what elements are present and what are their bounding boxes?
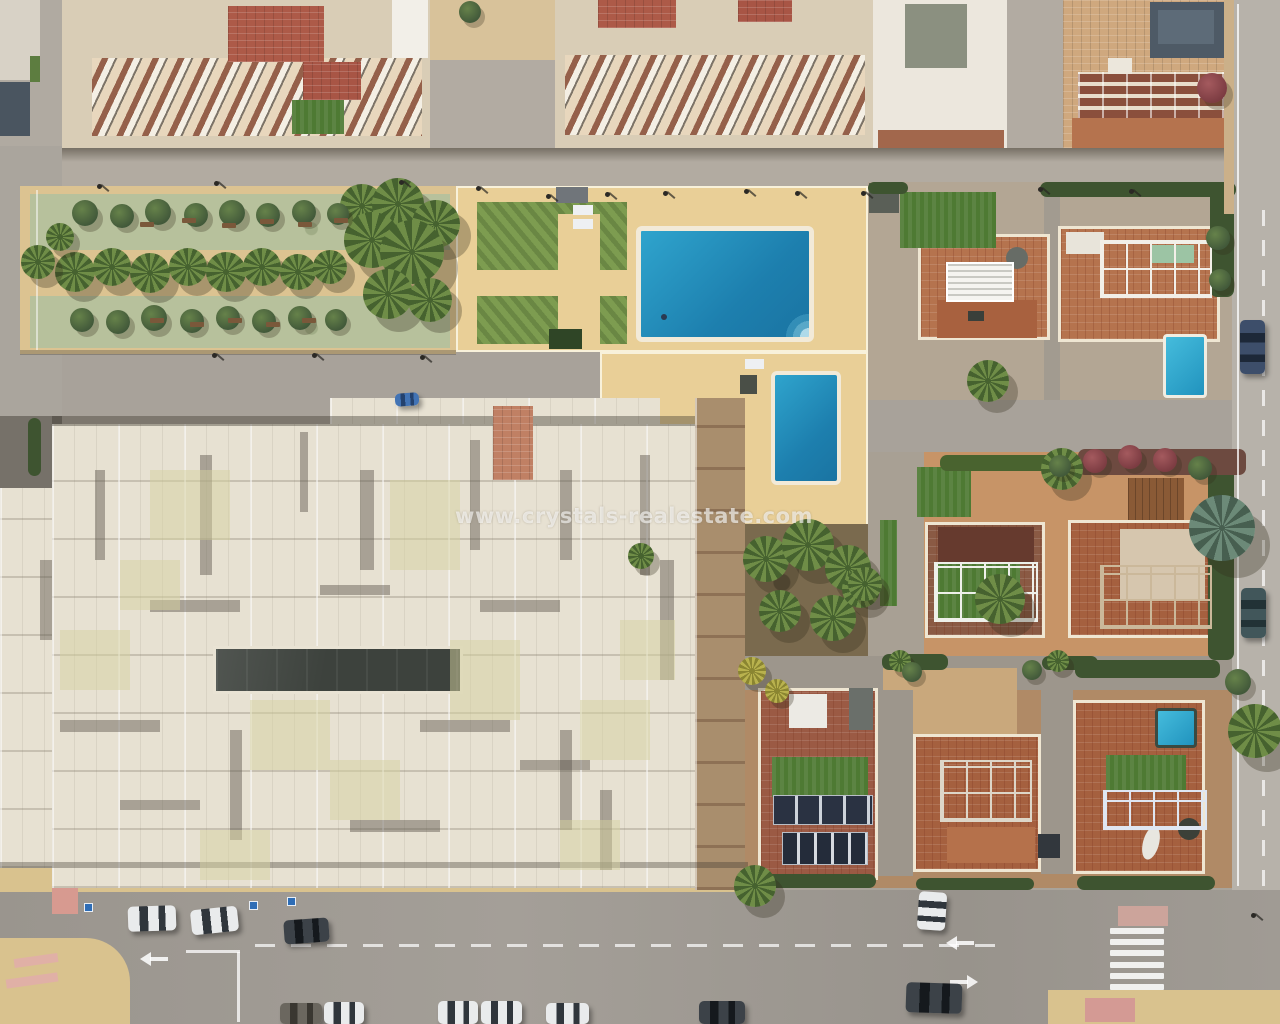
- crosswalk-stripe: [1110, 962, 1164, 968]
- parking-sign: [287, 897, 296, 906]
- car: [481, 1001, 522, 1024]
- palm-tree: [21, 245, 55, 279]
- car: [546, 1003, 589, 1024]
- prop: [573, 219, 593, 229]
- lane-dash: [1262, 660, 1265, 676]
- lane-dash: [1262, 540, 1265, 556]
- roof-shadow: [470, 440, 480, 550]
- tree: [252, 309, 276, 333]
- lane-dash: [1262, 270, 1265, 286]
- roof-shadow: [20, 350, 456, 355]
- car: [128, 905, 177, 932]
- roof-shadow: [95, 470, 105, 560]
- crosswalk-stripe: [1110, 984, 1164, 990]
- block-b-balconies: [565, 55, 865, 135]
- prop: [392, 0, 428, 58]
- lane-dash: [1262, 240, 1265, 256]
- prop: [878, 130, 1004, 148]
- lane-dash: [327, 944, 347, 947]
- watermark: www.crystals-realestate.com: [455, 504, 813, 528]
- tree: [184, 203, 208, 227]
- lane-dash: [903, 944, 923, 947]
- villa-turf: [880, 520, 897, 606]
- garden-pergola-deck: [1128, 478, 1184, 522]
- prop: [52, 888, 78, 914]
- prop: [738, 0, 792, 22]
- hedge: [1077, 876, 1215, 890]
- prop: [1085, 998, 1135, 1022]
- block-c-terrace: [1072, 118, 1224, 148]
- roof-shadow: [320, 585, 390, 595]
- aerial-photo: www.crystals-realestate.com: [0, 0, 1280, 1024]
- tree: [902, 662, 922, 682]
- lane-dash: [615, 944, 635, 947]
- lane-dash: [1262, 780, 1265, 796]
- palm-tree: [46, 223, 74, 251]
- railing-grid: [940, 760, 1032, 822]
- tree: [1197, 73, 1227, 103]
- arrow-head: [946, 936, 957, 950]
- tree: [1083, 449, 1107, 473]
- railing-grid: [1100, 240, 1212, 298]
- main-pool: [636, 226, 814, 342]
- prop: [1066, 232, 1104, 254]
- prop: [493, 406, 533, 480]
- apartment-roof-west: [0, 488, 52, 868]
- park-bench: [266, 322, 280, 327]
- lane-dash: [255, 944, 275, 947]
- car: [905, 982, 962, 1014]
- lane-dash: [867, 944, 887, 947]
- prop: [789, 694, 827, 728]
- solar-panels: [773, 795, 873, 825]
- prop: [573, 205, 593, 215]
- hedge: [868, 182, 908, 194]
- courtyard-skylight: [213, 646, 463, 694]
- tree: [72, 200, 98, 226]
- lane-dash: [435, 944, 455, 947]
- palm-tree: [1228, 704, 1280, 758]
- lane-dash: [723, 944, 743, 947]
- prop: [30, 56, 40, 82]
- lane-dash: [291, 944, 311, 947]
- prop: [1158, 10, 1214, 44]
- roof-tint: [120, 560, 180, 610]
- roof-shadow: [420, 720, 510, 732]
- tree: [70, 308, 94, 332]
- arrow-bar: [150, 957, 168, 961]
- tree: [292, 200, 316, 224]
- prop: [968, 311, 984, 321]
- palm-tree: [628, 543, 654, 569]
- lane-dash: [1262, 840, 1265, 856]
- prop: [905, 4, 967, 68]
- prop: [549, 329, 582, 349]
- lane-dash: [1262, 480, 1265, 496]
- villa-1a-terrace: [937, 300, 1037, 338]
- roof-shadow: [560, 730, 572, 830]
- tree: [180, 309, 204, 333]
- lane-dash: [1262, 810, 1265, 826]
- prop: [1038, 834, 1060, 858]
- roof-shadow: [120, 800, 200, 810]
- park-bench: [334, 218, 348, 223]
- palm-tree: [93, 248, 131, 286]
- villa-turf: [772, 757, 868, 797]
- lane-dash: [975, 944, 995, 947]
- hedge: [1075, 660, 1220, 678]
- roof-shadow: [40, 560, 52, 640]
- solar-panels: [782, 832, 868, 865]
- prop: [0, 82, 30, 136]
- palm-tree: [55, 252, 95, 292]
- roof-shadow: [60, 720, 160, 732]
- park-bench: [190, 322, 204, 327]
- tree: [1209, 269, 1231, 291]
- palm-tree: [734, 865, 776, 907]
- car: [324, 1002, 364, 1024]
- prop: [303, 62, 361, 100]
- lane-dash: [1262, 210, 1265, 226]
- crosswalk-stripe: [1110, 973, 1164, 979]
- palm-tree: [363, 269, 413, 319]
- villa-3c-pool: [1155, 708, 1197, 748]
- lane-dash: [543, 944, 563, 947]
- park-bench: [302, 318, 316, 323]
- palm-tree: [1047, 650, 1069, 672]
- roof-shadow: [520, 760, 590, 770]
- road-line: [186, 950, 240, 953]
- park-bench: [298, 222, 312, 227]
- lawn-path: [558, 214, 600, 346]
- palm-tree: [975, 574, 1025, 624]
- park-bench: [140, 222, 154, 227]
- lane-dash: [1262, 570, 1265, 586]
- pergola-roof: [946, 262, 1014, 302]
- prop: [228, 6, 324, 62]
- villa-3b-terrace: [947, 827, 1035, 863]
- roof-tint: [450, 640, 520, 720]
- villa-cross-road: [868, 400, 1232, 452]
- tree: [459, 1, 481, 23]
- car: [1240, 320, 1265, 374]
- tree: [110, 204, 134, 228]
- palm-tree: [738, 657, 766, 685]
- lane-dash: [687, 944, 707, 947]
- roof-shadow: [360, 470, 374, 570]
- park-bench: [260, 219, 274, 224]
- lane-dash: [651, 944, 671, 947]
- hedge: [916, 878, 1034, 890]
- lane-dash: [1262, 450, 1265, 466]
- tree: [1118, 445, 1142, 469]
- roof-tint: [60, 630, 130, 690]
- prop: [598, 0, 676, 28]
- lane-dash: [1262, 390, 1265, 406]
- lawn-north: [477, 202, 627, 270]
- tree: [1225, 669, 1251, 695]
- palm-tree: [130, 253, 170, 293]
- prop: [661, 314, 667, 320]
- car: [190, 906, 239, 936]
- car: [395, 392, 420, 407]
- car: [1241, 588, 1266, 638]
- parking-sign: [84, 903, 93, 912]
- right-road: [1232, 0, 1280, 892]
- lane-dash: [795, 944, 815, 947]
- lane-dash: [579, 944, 599, 947]
- lane-dash: [363, 944, 383, 947]
- roof-tint: [580, 700, 650, 760]
- lane-dash: [1262, 300, 1265, 316]
- tree: [1153, 448, 1177, 472]
- park-bench: [150, 318, 164, 323]
- crosswalk-stripe: [1110, 950, 1164, 956]
- roof-shadow: [300, 432, 308, 512]
- park-bench: [222, 223, 236, 228]
- roof-tint: [560, 820, 620, 870]
- arrow-bar: [956, 941, 974, 945]
- roof-tint: [250, 700, 330, 770]
- lane-dash: [1262, 510, 1265, 526]
- arrow-head: [140, 952, 151, 966]
- palm-tree: [313, 250, 347, 284]
- roof-shadow: [52, 416, 695, 426]
- villa-1b-pool: [1163, 334, 1207, 398]
- roof-shadow: [480, 600, 560, 612]
- tree: [1022, 660, 1042, 680]
- roof-tint: [390, 480, 460, 570]
- car: [917, 891, 948, 931]
- car: [699, 1001, 745, 1024]
- palm-tree: [206, 252, 246, 292]
- roof-tint: [330, 760, 400, 820]
- tree: [1049, 455, 1071, 477]
- park-bench: [228, 318, 242, 323]
- prop: [849, 688, 873, 730]
- park-bench: [182, 218, 196, 223]
- palm-tree: [280, 254, 316, 290]
- lane-dash: [399, 944, 419, 947]
- tree: [325, 309, 347, 331]
- palm-tree: [1189, 495, 1255, 561]
- car: [283, 917, 330, 944]
- prop: [740, 375, 757, 394]
- roof-shadow: [230, 730, 242, 840]
- lane-dash: [507, 944, 527, 947]
- hedge: [28, 418, 41, 476]
- road-line: [237, 952, 240, 1022]
- prop: [1108, 58, 1132, 74]
- railing-grid: [1103, 790, 1207, 830]
- palm-tree: [967, 360, 1009, 402]
- road-arrow: [946, 936, 976, 950]
- lane-dash: [831, 944, 851, 947]
- lane-dash: [759, 944, 779, 947]
- roof-tint: [150, 470, 230, 540]
- crosswalk-stripe: [1110, 928, 1164, 934]
- plaza-gap-terrace: [430, 0, 555, 60]
- palm-tree: [408, 278, 452, 322]
- crosswalk-stripe: [1110, 939, 1164, 945]
- palm-tree: [243, 248, 281, 286]
- prop: [745, 359, 764, 369]
- car: [438, 1001, 478, 1024]
- villa-2c-roofband: [938, 527, 1034, 563]
- tree: [106, 310, 130, 334]
- lane-dash: [1262, 870, 1265, 886]
- prop: [556, 187, 588, 203]
- road-line: [1237, 4, 1239, 886]
- roof-tint: [620, 620, 675, 680]
- villa-turf: [292, 100, 344, 134]
- block-gap-2: [1007, 0, 1063, 148]
- lane-dash: [1262, 420, 1265, 436]
- villa-turf: [917, 467, 971, 517]
- villa-turf: [900, 192, 996, 248]
- roof-shadow: [0, 862, 748, 868]
- palm-tree: [169, 248, 207, 286]
- parking-sign: [249, 901, 258, 910]
- villa-turf: [1106, 755, 1186, 791]
- kids-pool: [771, 371, 841, 485]
- row3-gap1: [878, 690, 913, 876]
- car: [280, 1003, 322, 1024]
- terrace-lane: [695, 398, 745, 890]
- tree: [1188, 456, 1212, 480]
- roof-tint: [200, 830, 270, 880]
- lane-dash: [471, 944, 491, 947]
- palm-tree: [848, 567, 882, 601]
- tree: [1206, 226, 1230, 250]
- lane-dash: [1262, 690, 1265, 706]
- road-arrow: [140, 952, 170, 966]
- sand-corner-right: [1048, 990, 1280, 1024]
- arrow-head: [967, 975, 978, 989]
- block-a-balconies: [92, 58, 422, 136]
- prop: [1118, 906, 1168, 926]
- prop: [1224, 0, 1234, 214]
- palm-tree: [759, 590, 801, 632]
- railing-grid: [1100, 565, 1212, 629]
- palm-tree: [765, 679, 789, 703]
- roof-shadow: [350, 820, 440, 832]
- pool-steps: [769, 303, 809, 337]
